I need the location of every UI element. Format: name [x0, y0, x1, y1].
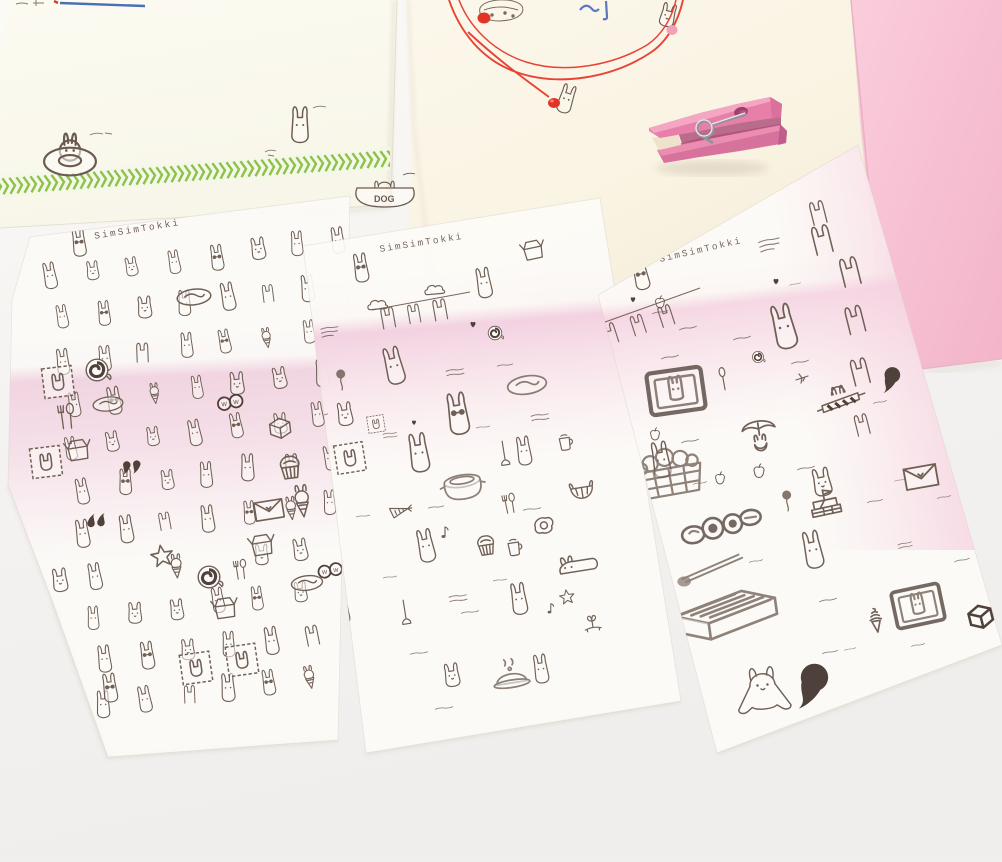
svg-text:DOG: DOG — [374, 194, 395, 204]
